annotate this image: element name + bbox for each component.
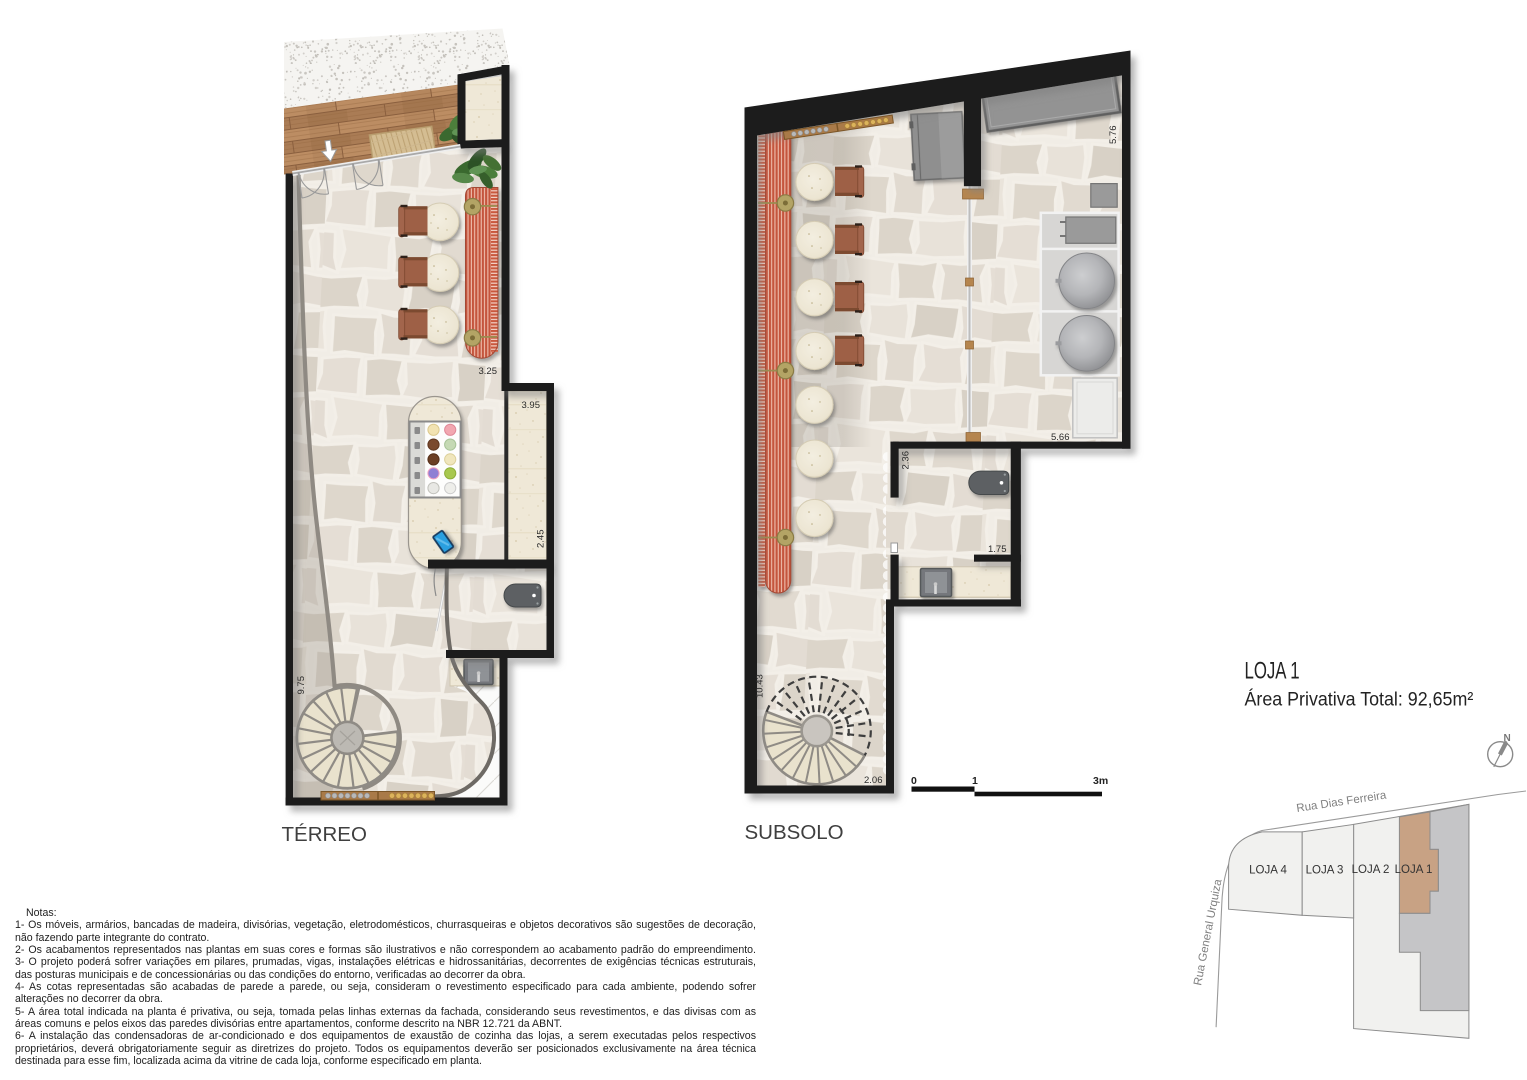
svg-text:9.75: 9.75 xyxy=(296,676,307,695)
svg-text:LOJA 1: LOJA 1 xyxy=(1245,658,1300,685)
svg-text:Rua General Urquiza: Rua General Urquiza xyxy=(1192,878,1225,987)
svg-text:LOJA 3: LOJA 3 xyxy=(1306,865,1344,877)
svg-text:LOJA 2: LOJA 2 xyxy=(1352,864,1390,876)
svg-text:0: 0 xyxy=(911,775,917,787)
svg-text:3.25: 3.25 xyxy=(479,366,498,377)
svg-text:LOJA 4: LOJA 4 xyxy=(1249,865,1287,877)
svg-text:LOJA 1: LOJA 1 xyxy=(1395,864,1433,876)
svg-text:10.43: 10.43 xyxy=(755,674,766,698)
svg-text:TÉRREO: TÉRREO xyxy=(282,823,367,846)
svg-text:3m: 3m xyxy=(1093,775,1108,787)
svg-text:N: N xyxy=(1504,733,1511,744)
svg-text:5.76: 5.76 xyxy=(1108,126,1119,145)
svg-text:2.36: 2.36 xyxy=(901,451,912,470)
svg-text:Área Privativa Total: 92,65m²: Área Privativa Total: 92,65m² xyxy=(1245,688,1474,710)
svg-text:3.95: 3.95 xyxy=(522,400,541,411)
svg-text:2.45: 2.45 xyxy=(536,530,547,549)
svg-text:Rua Dias Ferreira: Rua Dias Ferreira xyxy=(1296,789,1388,815)
svg-text:5.66: 5.66 xyxy=(1051,432,1070,443)
svg-text:2.06: 2.06 xyxy=(864,775,883,786)
svg-text:SUBSOLO: SUBSOLO xyxy=(745,821,844,844)
svg-text:1.75: 1.75 xyxy=(988,544,1007,555)
svg-text:1: 1 xyxy=(972,775,978,787)
